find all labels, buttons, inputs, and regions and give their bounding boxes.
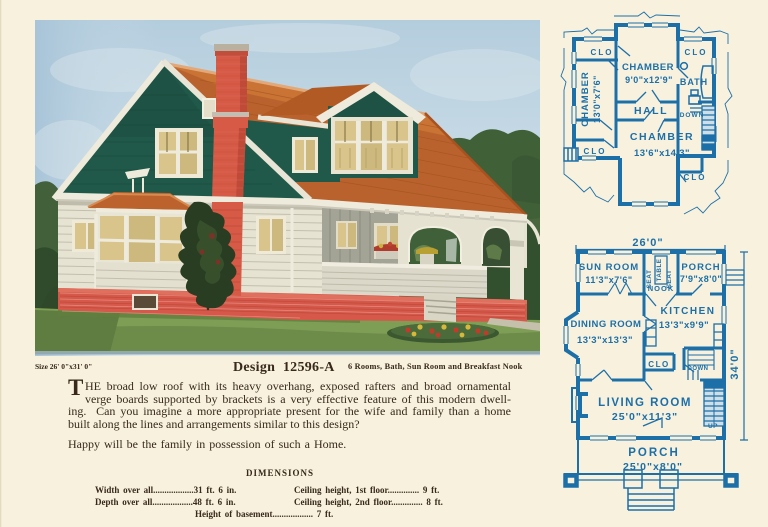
svg-text:LIVING ROOM: LIVING ROOM xyxy=(598,397,692,409)
svg-text:PORCH: PORCH xyxy=(628,447,680,459)
svg-text:13'6"x14'3": 13'6"x14'3" xyxy=(634,148,690,159)
svg-text:CHAMBER: CHAMBER xyxy=(622,62,674,73)
svg-text:CLO: CLO xyxy=(584,147,607,156)
svg-text:CLO: CLO xyxy=(684,173,707,182)
svg-text:NOOK: NOOK xyxy=(648,284,675,293)
svg-text:CHAMBER: CHAMBER xyxy=(580,71,591,127)
svg-text:13'3"x9'9": 13'3"x9'9" xyxy=(659,320,709,331)
svg-text:KITCHEN: KITCHEN xyxy=(661,306,716,317)
svg-text:13'3"x13'3": 13'3"x13'3" xyxy=(577,335,633,346)
svg-text:CLO: CLO xyxy=(591,48,614,57)
svg-text:BATH: BATH xyxy=(680,77,708,87)
svg-text:HALL: HALL xyxy=(634,105,668,117)
svg-text:13'0"x7'6": 13'0"x7'6" xyxy=(592,75,602,123)
svg-text:PORCH: PORCH xyxy=(681,262,720,273)
svg-text:DOWN: DOWN xyxy=(680,112,705,119)
svg-text:26'0": 26'0" xyxy=(632,237,663,249)
svg-text:CLO: CLO xyxy=(648,360,669,369)
svg-text:34'0": 34'0" xyxy=(729,348,741,379)
svg-text:DINING ROOM: DINING ROOM xyxy=(571,319,642,330)
svg-text:25'0"x11'3": 25'0"x11'3" xyxy=(612,411,678,423)
svg-text:9'0"x12'9": 9'0"x12'9" xyxy=(625,75,673,85)
svg-text:SUN ROOM: SUN ROOM xyxy=(579,262,639,273)
svg-text:TABLE: TABLE xyxy=(656,258,663,281)
svg-text:DOWN: DOWN xyxy=(688,366,709,372)
svg-text:UP: UP xyxy=(708,423,718,430)
svg-text:25'0"x8'0": 25'0"x8'0" xyxy=(623,461,683,473)
svg-text:7'9"x8'0": 7'9"x8'0" xyxy=(680,274,722,284)
svg-text:CLO: CLO xyxy=(685,48,708,57)
svg-text:11'3"x7'6": 11'3"x7'6" xyxy=(585,275,632,285)
svg-text:CHAMBER: CHAMBER xyxy=(630,131,694,143)
